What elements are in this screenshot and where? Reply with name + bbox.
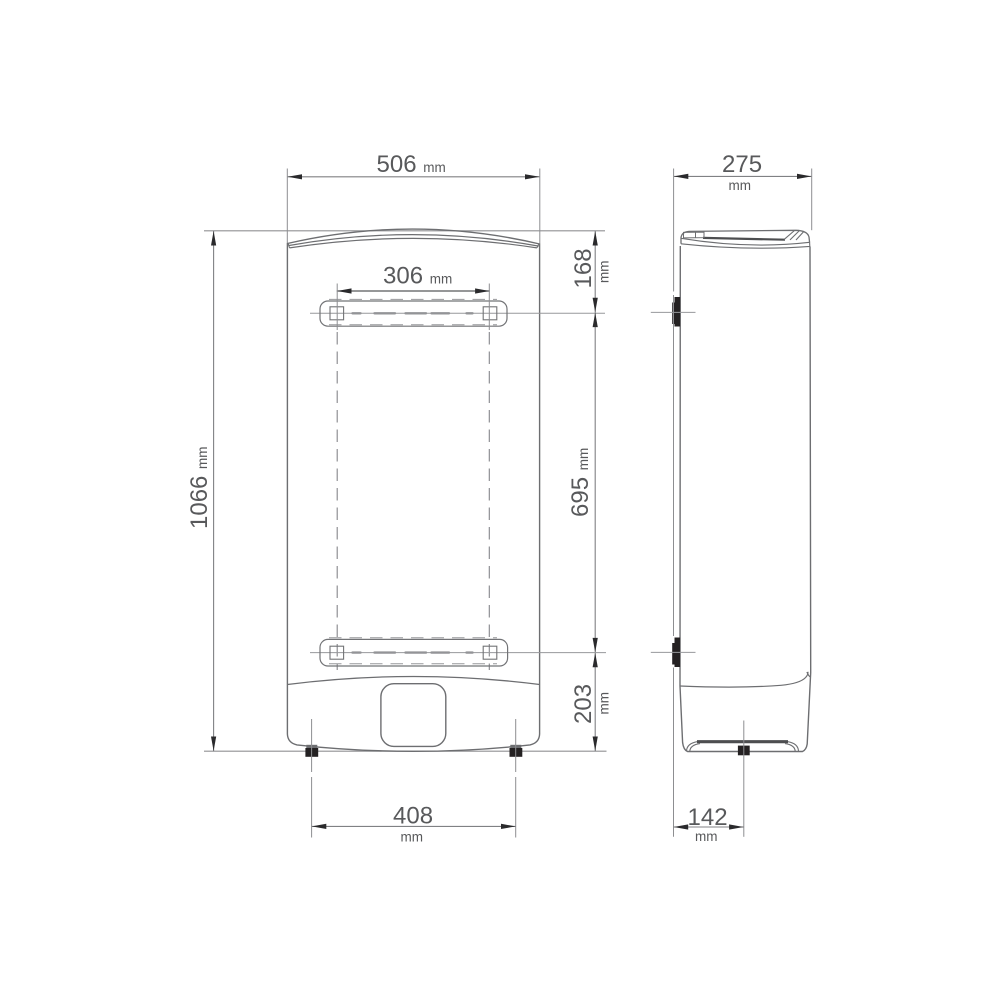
svg-text:203: 203 (570, 684, 597, 724)
svg-text:mm: mm (729, 178, 752, 193)
svg-text:mm: mm (401, 830, 424, 845)
svg-text:mm: mm (597, 261, 612, 284)
svg-text:mm: mm (695, 829, 718, 844)
svg-text:408: 408 (393, 802, 433, 829)
svg-text:168: 168 (570, 248, 597, 288)
svg-text:mm: mm (597, 692, 612, 715)
svg-text:275: 275 (722, 151, 762, 178)
svg-text:142: 142 (688, 804, 728, 831)
